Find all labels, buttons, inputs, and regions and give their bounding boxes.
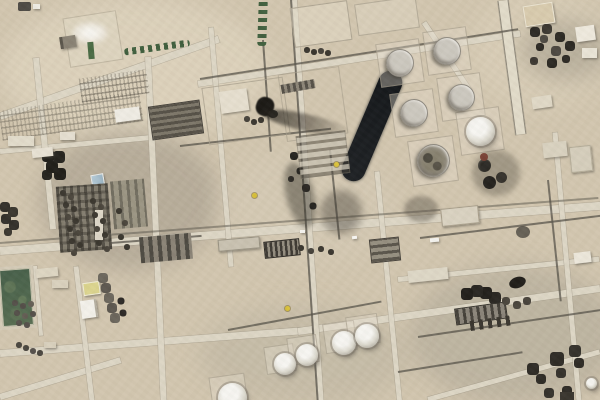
dark-blob-east <box>516 226 530 238</box>
unit-grid-main <box>56 183 112 252</box>
block-east-1 <box>569 145 594 173</box>
road-southwest-corner <box>0 357 121 400</box>
misc-equipment-dashes <box>0 0 2 2</box>
block-outline-1 <box>289 0 352 48</box>
white-building-sw <box>80 299 98 319</box>
yellow-roof-building <box>82 281 101 296</box>
light-building-east-central <box>440 205 480 227</box>
gray-patch-east-central <box>404 196 438 222</box>
yellow-marker-3 <box>285 306 290 311</box>
dark-block-ne <box>148 100 204 141</box>
white-vehicle-1 <box>352 236 357 239</box>
white-building-w3 <box>60 132 75 140</box>
burnt-tank-2 <box>483 176 496 189</box>
small-white-building-top <box>33 4 40 9</box>
spheroid-tank-5 <box>355 324 379 348</box>
white-building-w2 <box>32 147 54 158</box>
unit-rows-center <box>296 130 351 179</box>
storage-tank-2 <box>433 37 461 65</box>
yellow-marker-2 <box>334 162 339 167</box>
steam-plume <box>72 22 108 44</box>
white-building-w4 <box>8 136 34 146</box>
white-tower-row <box>95 210 103 240</box>
tan-building-below-field <box>44 342 56 348</box>
compound-building <box>59 35 77 49</box>
white-building-tr2 <box>582 48 597 58</box>
white-dome-tank <box>466 117 495 146</box>
small-white-tank-corner <box>586 378 597 389</box>
white-roof-building <box>219 88 250 114</box>
white-vehicle-2 <box>300 230 305 233</box>
smoke-stain-south-2 <box>320 190 362 234</box>
green-field <box>0 268 34 327</box>
dark-stripe-row-sw <box>139 233 193 263</box>
storage-tank-4 <box>400 99 428 127</box>
white-building-east <box>573 251 591 264</box>
white-building-tr1 <box>575 25 596 42</box>
block-outline-2 <box>354 0 420 36</box>
unit-rows-east-of-lagoon <box>369 236 401 263</box>
storage-tank-5-mottled <box>417 144 450 177</box>
dark-rect-bottom-edge <box>560 392 574 400</box>
white-truck <box>430 238 439 243</box>
tan-building-se1 <box>407 267 448 283</box>
spheroid-tank-2 <box>274 353 296 375</box>
yellow-marker-1 <box>252 193 257 198</box>
spheroid-tank-4 <box>332 331 356 355</box>
storage-tank-3 <box>448 84 475 111</box>
storage-tank-1 <box>386 49 414 77</box>
satellite-image <box>0 0 600 400</box>
block-east-2 <box>542 141 567 158</box>
corner-dark-structure <box>18 2 31 11</box>
tree-row-vertical <box>257 0 268 46</box>
red-scorch-spot <box>480 153 488 161</box>
tan-building-sw2 <box>52 280 68 288</box>
spheroid-tank-3 <box>296 344 318 366</box>
tan-building-sw1 <box>36 267 59 278</box>
burnt-tank-3 <box>496 172 507 183</box>
unit-grid-2 <box>110 179 148 230</box>
